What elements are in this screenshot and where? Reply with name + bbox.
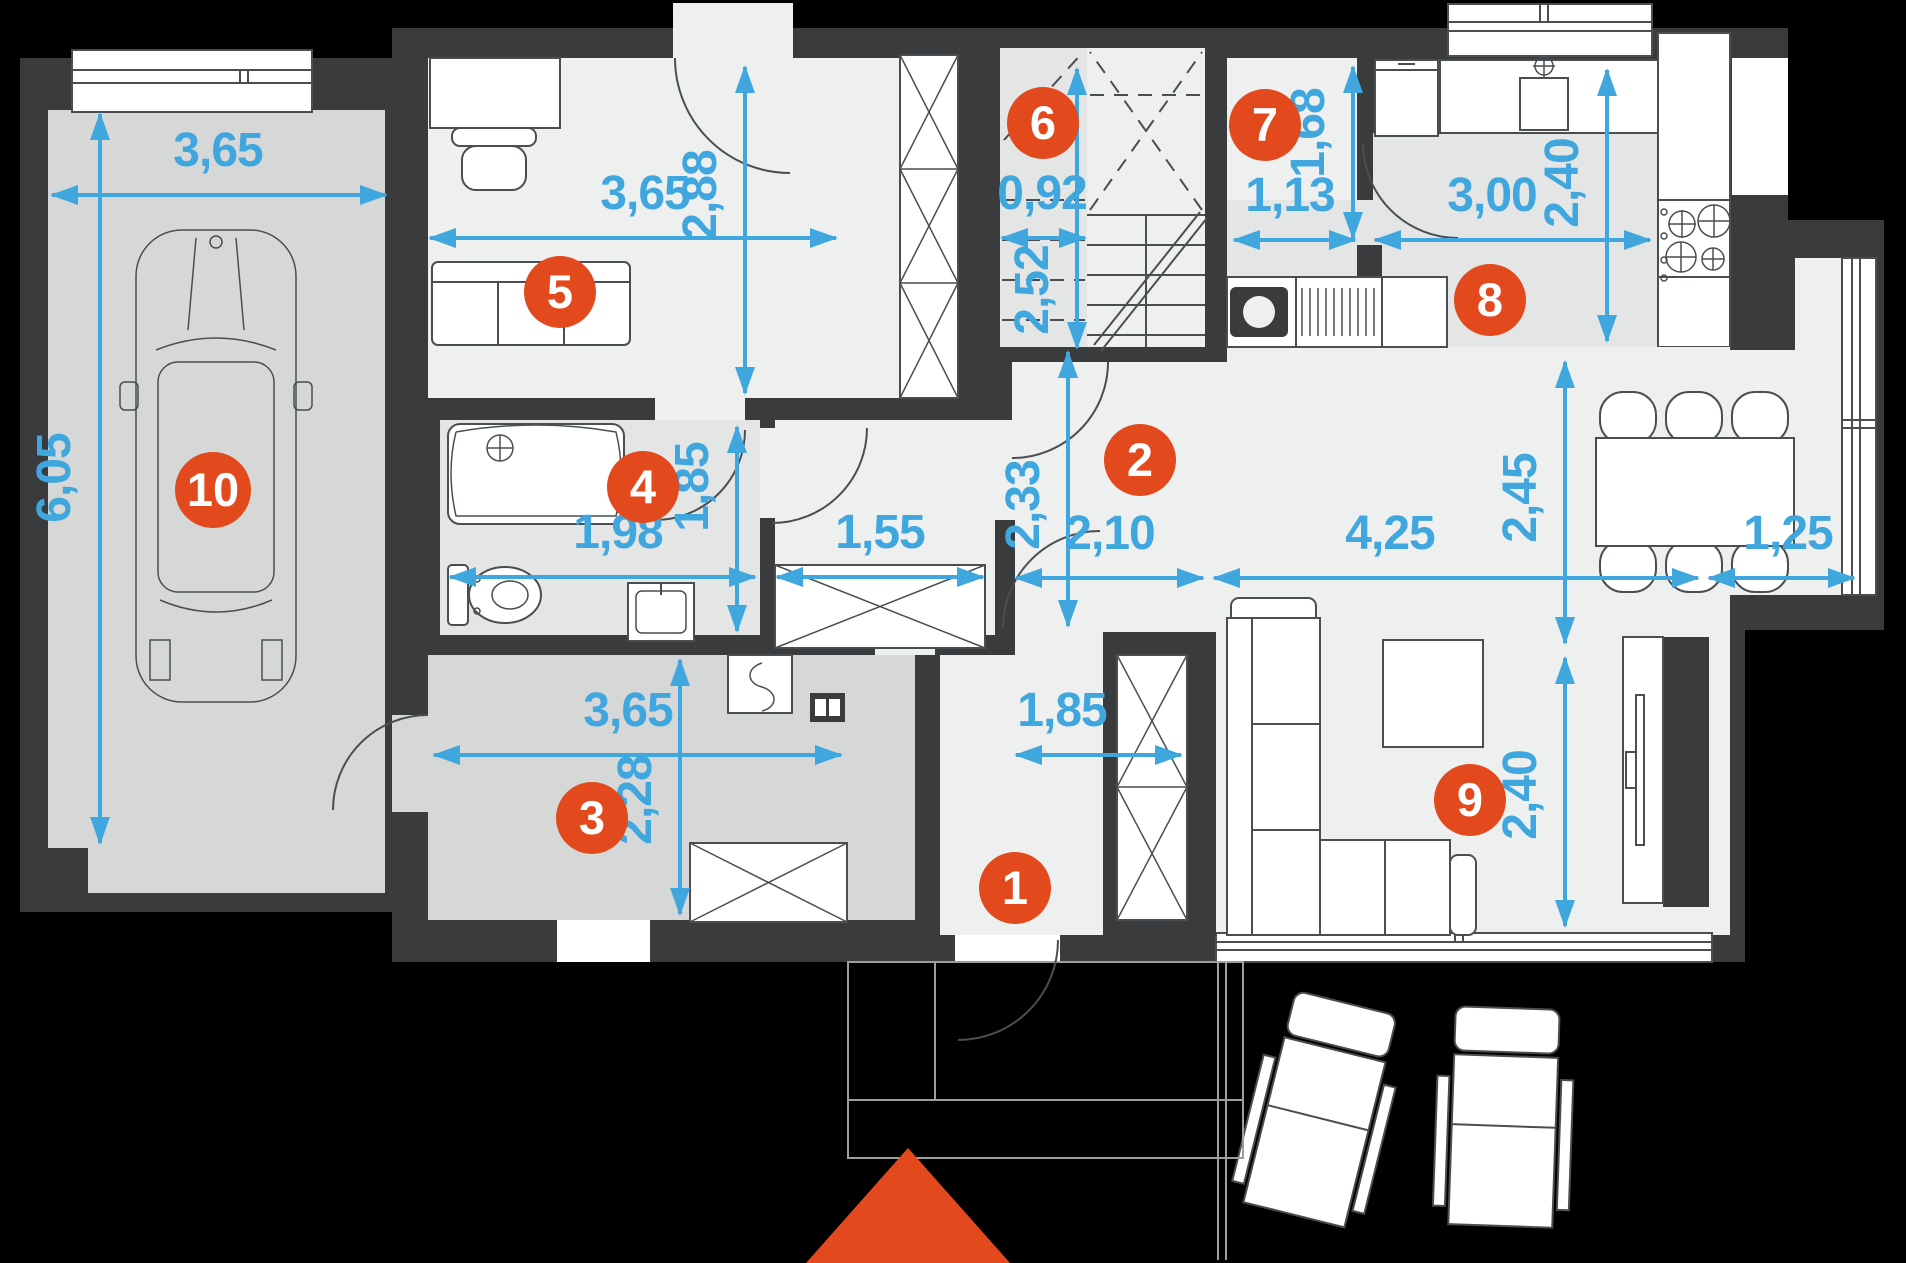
bay-window [1842,258,1876,595]
room-badge-4: 4 [607,451,679,523]
room-badge-7: 7 [1229,89,1301,161]
meter-box [810,693,845,722]
svg-text:7: 7 [1252,98,1278,151]
room-badge-6: 6 [1007,87,1079,159]
dim-utility-width: 3,65 [583,684,673,737]
dim-kitchen-depth: 2,40 [1536,138,1589,227]
dim-office-depth: 2,88 [674,150,727,240]
bath-door-gap [760,428,775,518]
desk [430,58,560,128]
kitchen-hood [1520,78,1568,130]
svg-text:9: 9 [1457,773,1483,826]
svg-text:6: 6 [1030,96,1056,149]
svg-text:3: 3 [579,791,605,844]
dining-chair [1600,540,1656,592]
svg-text:1: 1 [1002,861,1028,914]
dim-stairs-width: 0,92 [997,167,1086,220]
svg-text:5: 5 [547,265,573,318]
dim-stairs-depth: 2,52 [1006,245,1059,334]
garage-door [72,50,312,112]
utility-exit-gap [557,920,650,962]
room-badge-3: 3 [556,782,628,854]
svg-text:4: 4 [630,460,656,513]
dim-kitchen-width: 3,00 [1447,169,1536,222]
room-badge-5: 5 [524,256,596,328]
svg-text:2: 2 [1127,433,1153,486]
boiler [728,655,792,713]
floor-plan-canvas: 3,65 6,05 3,65 2,88 0,92 2,52 1,13 1,68 … [0,0,1906,1263]
dim-hall-depth: 2,33 [997,460,1050,549]
coffee-table [1383,640,1483,747]
dim-garage-depth: 6,05 [28,433,81,523]
room-badge-9: 9 [1434,764,1506,836]
dim-dining-depth: 2,45 [1494,453,1547,543]
kitchen-window [1448,4,1652,56]
svg-text:10: 10 [187,463,239,516]
toilet [448,565,541,625]
garage-door-gap [392,715,428,812]
stove [1658,200,1730,281]
dim-dining-width: 4,25 [1345,507,1435,560]
dining-chair [1666,392,1722,444]
floor-plan-page: 3,65 6,05 3,65 2,88 0,92 2,52 1,13 1,68 … [0,0,1906,1263]
kitchen-top-counter [1440,55,1658,133]
room-badge-1: 1 [979,852,1051,924]
washbasin [628,583,694,641]
kitchen-counter-column [1658,33,1730,347]
dim-entry-width: 1,85 [1017,684,1107,737]
dining-chair [1600,392,1656,444]
fridge [1375,60,1438,136]
dim-closet-width: 1,55 [835,506,925,559]
room-badge-8: 8 [1454,264,1526,336]
office-chair [452,128,536,190]
entry-door-gap [955,935,1060,962]
dim-bay-width: 1,25 [1743,507,1833,560]
room-badge-10: 10 [175,452,251,528]
dining-set [1596,392,1794,592]
tv-unit [1623,637,1663,903]
kitchen-nook [1732,58,1788,195]
dining-chair [1666,540,1722,592]
office-door-gap [655,398,745,420]
office-door-recess [673,3,793,58]
dim-garage-width: 3,65 [173,124,263,177]
svg-text:8: 8 [1477,273,1503,326]
room-badge-2: 2 [1104,424,1176,496]
office-wardrobe [900,55,958,398]
dining-chair [1732,392,1788,444]
lounge-chair [1432,1006,1576,1229]
utility-closet [690,843,847,922]
entry-wardrobe [1117,655,1187,920]
dim-hall-width: 2,10 [1065,507,1154,560]
terrace-window [1216,933,1712,962]
sink-counter [1227,277,1447,347]
